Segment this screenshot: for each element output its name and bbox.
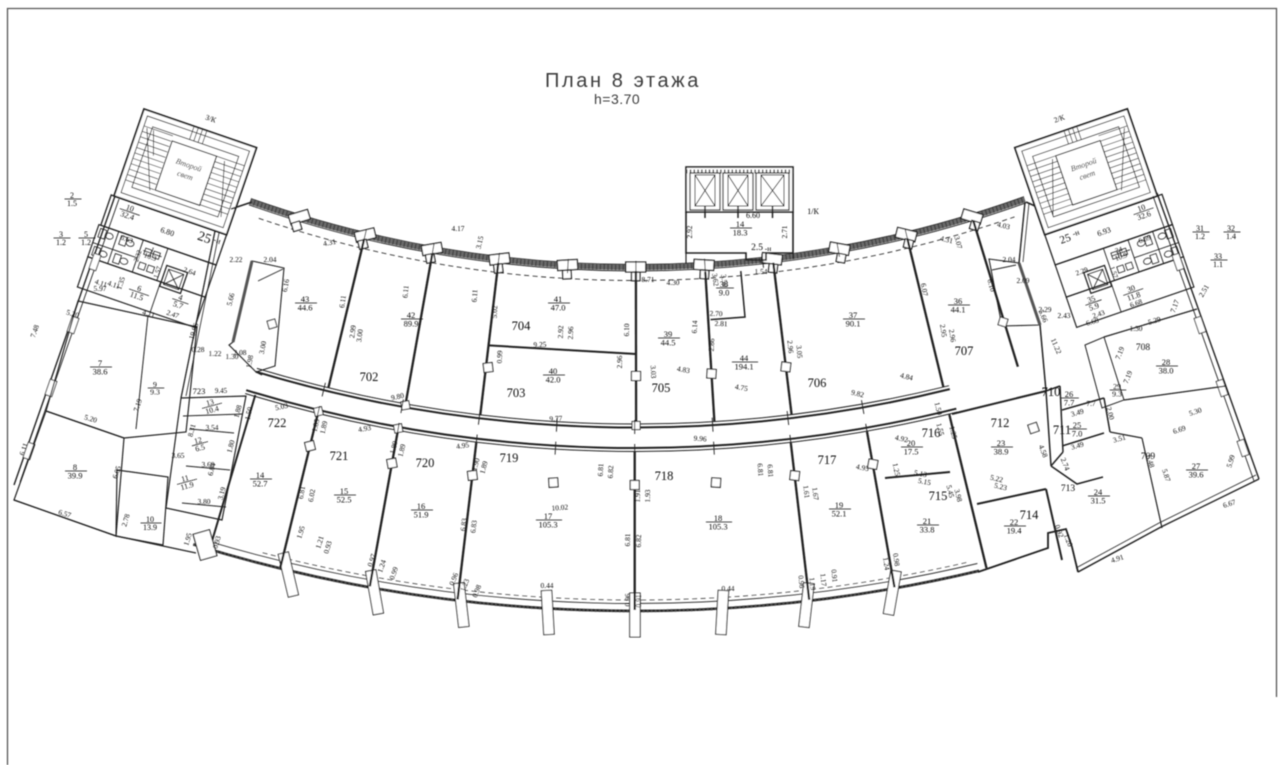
- svg-text:702: 702: [360, 370, 379, 384]
- svg-text:704: 704: [512, 319, 532, 333]
- svg-text:720: 720: [416, 456, 435, 470]
- svg-text:0.28: 0.28: [192, 345, 205, 354]
- svg-text:717: 717: [818, 453, 837, 467]
- svg-text:38.9: 38.9: [994, 446, 1009, 456]
- svg-text:8.71: 8.71: [642, 275, 655, 284]
- svg-text:9.0: 9.0: [719, 287, 730, 297]
- svg-text:0.44: 0.44: [722, 584, 735, 593]
- svg-text:5.97: 5.97: [94, 284, 107, 293]
- svg-text:10.02: 10.02: [551, 502, 569, 512]
- svg-text:713: 713: [1061, 484, 1076, 494]
- svg-text:6.11: 6.11: [470, 289, 480, 303]
- svg-text:2.96: 2.96: [615, 355, 624, 368]
- svg-text:h=3.70: h=3.70: [594, 91, 640, 107]
- svg-text:2.5: 2.5: [751, 243, 763, 253]
- svg-text:6.83: 6.83: [458, 517, 469, 531]
- svg-text:3.68: 3.68: [202, 460, 215, 469]
- svg-text:2.43: 2.43: [1058, 311, 1071, 320]
- svg-text:2.22: 2.22: [230, 255, 243, 264]
- svg-text:723: 723: [193, 386, 206, 396]
- svg-text:718: 718: [655, 469, 674, 483]
- svg-text:7.7: 7.7: [1064, 397, 1075, 407]
- svg-text:0.96: 0.96: [623, 593, 632, 606]
- svg-text:0.99: 0.99: [495, 350, 504, 364]
- svg-text:-н: -н: [765, 244, 772, 253]
- svg-text:1.91: 1.91: [633, 489, 642, 502]
- svg-text:38.0: 38.0: [1159, 365, 1174, 375]
- svg-text:44.5: 44.5: [661, 337, 676, 347]
- svg-text:2.70: 2.70: [709, 309, 723, 318]
- svg-text:1/К: 1/К: [807, 207, 819, 216]
- svg-text:План 8 этажа: План 8 этажа: [545, 70, 701, 92]
- svg-text:0.44: 0.44: [541, 581, 554, 590]
- svg-text:0.91: 0.91: [634, 594, 643, 607]
- svg-text:7.7: 7.7: [1086, 399, 1096, 408]
- svg-text:18.3: 18.3: [733, 227, 748, 237]
- svg-text:1.1: 1.1: [1213, 260, 1223, 269]
- svg-text:7.0: 7.0: [1072, 428, 1083, 438]
- svg-text:3.80: 3.80: [198, 497, 211, 506]
- svg-text:6.81: 6.81: [623, 533, 632, 546]
- svg-text:707: 707: [955, 344, 974, 358]
- svg-text:2.04: 2.04: [264, 255, 277, 264]
- svg-text:1.5: 1.5: [67, 199, 77, 208]
- svg-text:711: 711: [1053, 423, 1071, 437]
- svg-text:4.17: 4.17: [452, 224, 465, 233]
- svg-text:19.4: 19.4: [1007, 525, 1023, 535]
- svg-text:6.11: 6.11: [337, 294, 348, 308]
- svg-text:1.17: 1.17: [818, 573, 828, 587]
- svg-text:714: 714: [1020, 508, 1040, 522]
- svg-text:1.19: 1.19: [807, 577, 817, 591]
- svg-text:13.9: 13.9: [143, 523, 157, 532]
- svg-text:9.45: 9.45: [215, 387, 228, 395]
- svg-text:42.0: 42.0: [546, 374, 561, 384]
- svg-text:9.3: 9.3: [1112, 390, 1122, 399]
- svg-text:90.1: 90.1: [846, 318, 861, 328]
- svg-text:33.8: 33.8: [920, 524, 935, 534]
- svg-text:1.54: 1.54: [755, 267, 768, 276]
- svg-text:3.50: 3.50: [719, 274, 730, 288]
- svg-text:9.3: 9.3: [150, 388, 160, 397]
- svg-text:9.25: 9.25: [533, 340, 547, 349]
- svg-text:105.3: 105.3: [538, 519, 557, 529]
- svg-text:51.9: 51.9: [414, 509, 429, 519]
- svg-text:6.82: 6.82: [634, 534, 643, 547]
- svg-text:105.3: 105.3: [708, 521, 727, 531]
- svg-text:1.30: 1.30: [226, 352, 239, 361]
- svg-text:31.5: 31.5: [1091, 495, 1106, 505]
- svg-text:9.96: 9.96: [693, 434, 707, 444]
- svg-text:6.81: 6.81: [596, 463, 606, 477]
- svg-text:47.0: 47.0: [551, 302, 566, 312]
- svg-text:3.00: 3.00: [354, 328, 365, 342]
- svg-text:2.92: 2.92: [556, 325, 565, 339]
- svg-text:17.5: 17.5: [904, 446, 919, 456]
- svg-text:6.11: 6.11: [400, 285, 410, 299]
- svg-text:44.6: 44.6: [298, 302, 313, 312]
- svg-text:0.91: 0.91: [829, 569, 839, 583]
- svg-text:6.60: 6.60: [746, 211, 760, 220]
- svg-text:1.2: 1.2: [56, 238, 66, 247]
- svg-text:706: 706: [808, 376, 827, 390]
- svg-text:1.2: 1.2: [81, 238, 91, 247]
- svg-text:719: 719: [500, 451, 519, 465]
- svg-text:2.81: 2.81: [714, 319, 728, 328]
- svg-text:2.09: 2.09: [1017, 276, 1030, 285]
- svg-text:194.1: 194.1: [734, 361, 753, 371]
- svg-text:721: 721: [330, 449, 349, 463]
- svg-text:2.29: 2.29: [1039, 305, 1052, 314]
- svg-text:6.14: 6.14: [690, 320, 700, 334]
- svg-text:1.22: 1.22: [209, 349, 222, 358]
- svg-text:1.2: 1.2: [1195, 232, 1205, 241]
- svg-text:52.5: 52.5: [337, 494, 352, 504]
- svg-text:89.9: 89.9: [404, 318, 419, 328]
- svg-text:5.02: 5.02: [490, 305, 500, 319]
- svg-text:3.05: 3.05: [794, 345, 804, 359]
- svg-text:715: 715: [929, 489, 948, 503]
- svg-text:6.81: 6.81: [766, 464, 776, 478]
- svg-text:2.96: 2.96: [566, 326, 575, 340]
- svg-text:1.93: 1.93: [643, 489, 652, 502]
- svg-text:6.83: 6.83: [468, 519, 479, 533]
- svg-text:1.67: 1.67: [810, 487, 821, 501]
- svg-text:39.6: 39.6: [1189, 469, 1204, 479]
- svg-text:6.10: 6.10: [622, 323, 631, 336]
- svg-text:4.30: 4.30: [667, 278, 680, 287]
- svg-text:1.4: 1.4: [1226, 232, 1236, 241]
- svg-text:708: 708: [1136, 343, 1151, 353]
- svg-text:722: 722: [268, 416, 287, 430]
- svg-text:710: 710: [1042, 385, 1061, 399]
- svg-text:2.92: 2.92: [685, 225, 694, 238]
- svg-text:52.1: 52.1: [832, 508, 847, 518]
- svg-text:2.96: 2.96: [785, 340, 795, 354]
- svg-text:38.6: 38.6: [93, 366, 108, 376]
- svg-text:44.1: 44.1: [951, 304, 966, 314]
- svg-text:1.30: 1.30: [1130, 324, 1143, 333]
- svg-text:39.9: 39.9: [68, 470, 83, 480]
- svg-text:3.54: 3.54: [206, 423, 219, 432]
- svg-text:712: 712: [991, 416, 1010, 430]
- svg-text:9.77: 9.77: [549, 414, 563, 424]
- svg-text:3.65: 3.65: [172, 451, 185, 460]
- svg-text:6.82: 6.82: [606, 465, 616, 479]
- svg-text:703: 703: [507, 386, 526, 400]
- svg-text:6.81: 6.81: [756, 463, 766, 477]
- svg-text:52.7: 52.7: [253, 478, 268, 488]
- svg-text:705: 705: [652, 381, 671, 395]
- svg-text:0.96: 0.96: [796, 575, 806, 589]
- svg-text:2.86: 2.86: [707, 338, 717, 352]
- svg-text:2.04: 2.04: [1003, 255, 1016, 264]
- svg-text:2.71: 2.71: [780, 225, 789, 238]
- svg-text:3.03: 3.03: [649, 365, 659, 379]
